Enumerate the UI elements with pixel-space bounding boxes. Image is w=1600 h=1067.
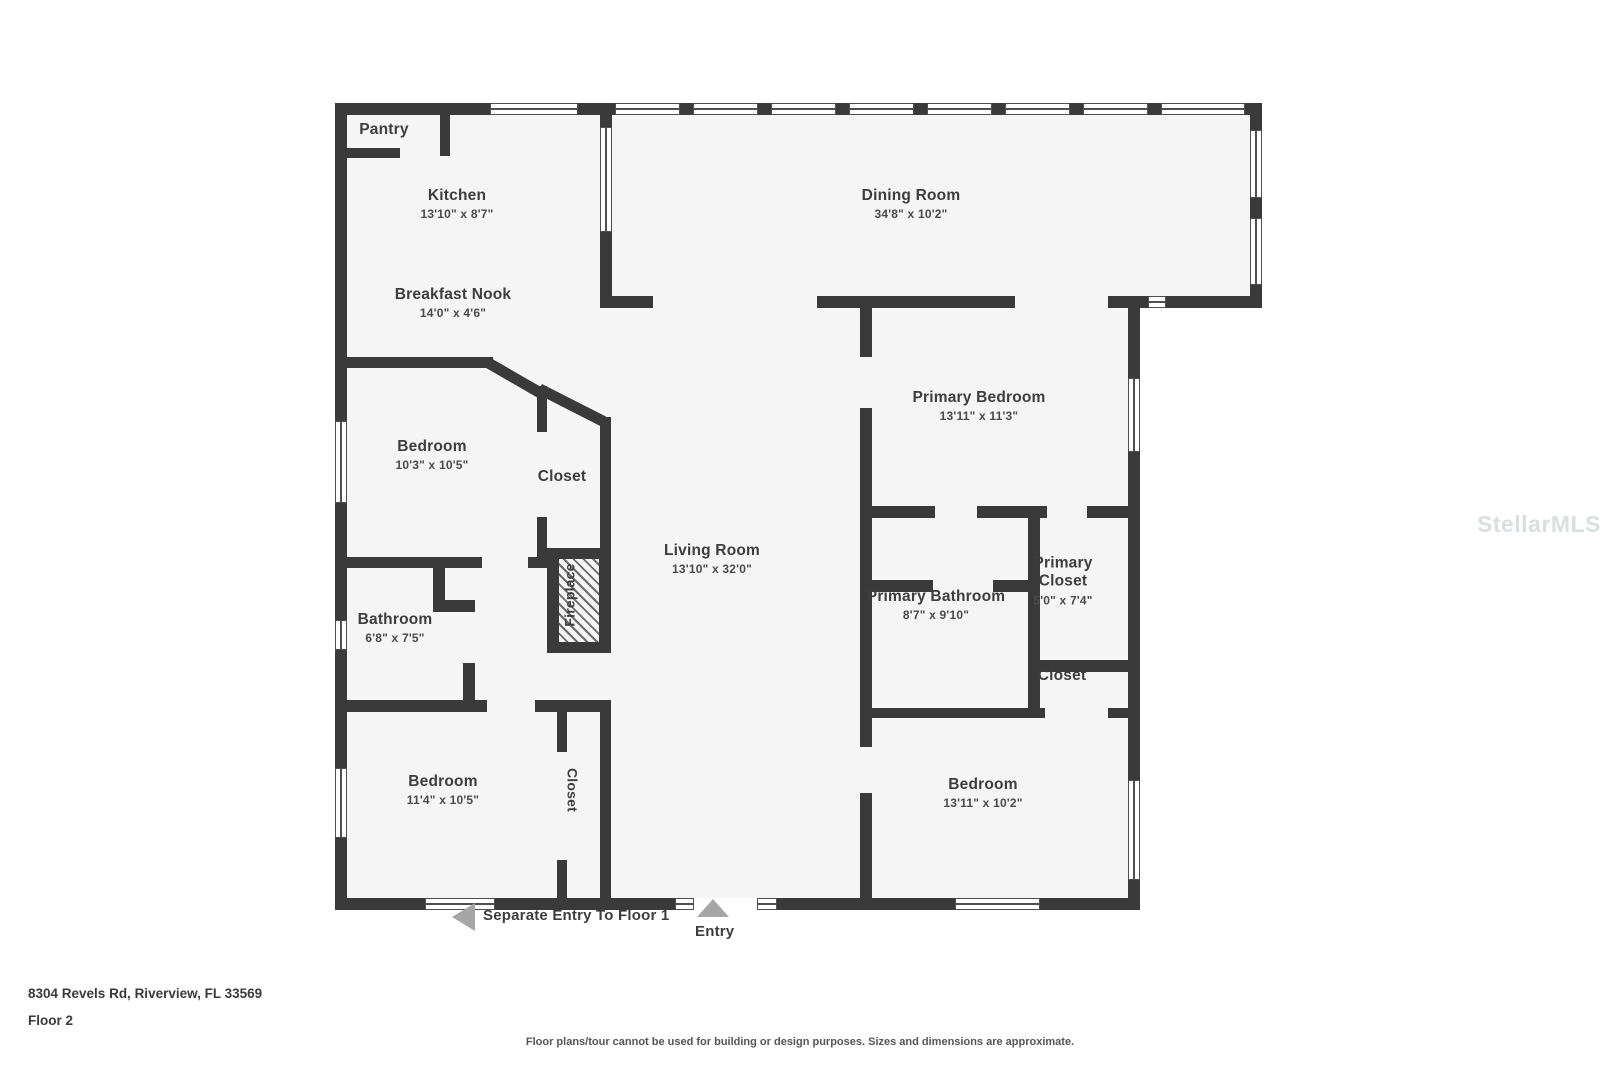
- window-symbol: [771, 103, 836, 115]
- room-label-breakfast-nook: Breakfast Nook 14'0" x 4'6": [395, 286, 512, 320]
- window-symbol: [693, 103, 758, 115]
- room-label-living-room: Living Room 13'10" x 32'0": [664, 542, 760, 576]
- window-symbol: [615, 103, 680, 115]
- wall-bathroom-jog: [433, 600, 475, 612]
- floorplan-canvas: Pantry Kitchen 13'10" x 8'7" Breakfast N…: [0, 0, 1600, 1067]
- room-dims: 14'0" x 4'6": [395, 306, 512, 320]
- room-dims: 8'7" x 9'10": [867, 608, 1005, 622]
- wall-primary-bedroom-bottom-c: [1087, 506, 1128, 518]
- room-name: Closet: [1038, 667, 1087, 685]
- room-name: Closet: [538, 468, 587, 486]
- wall-pantry-right: [440, 109, 450, 156]
- wall-hall-bottom-right: [535, 700, 611, 712]
- window-symbol: [1128, 780, 1140, 880]
- room-label-dining-room: Dining Room 34'8" x 10'2": [862, 187, 961, 221]
- room-label-kitchen: Kitchen 13'10" x 8'7": [420, 187, 493, 221]
- window-symbol: [955, 898, 1040, 910]
- room-name: Bedroom: [943, 776, 1022, 794]
- wall-closet-fireplace-right: [600, 417, 611, 653]
- door-jamb-symbol: [675, 898, 694, 910]
- window-symbol: [1083, 103, 1148, 115]
- window-symbol: [335, 421, 347, 503]
- room-label-bedroom-bottom-left: Bedroom 11'4" x 10'5": [407, 773, 479, 807]
- wall-pantry-bottom: [335, 148, 400, 158]
- window-symbol: [927, 103, 992, 115]
- room-label-bathroom: Bathroom 6'8" x 7'5": [358, 611, 433, 645]
- wall-bathroom-right-lower: [463, 663, 475, 703]
- room-dims: 10'3" x 10'5": [395, 458, 468, 472]
- separate-entry-label: Separate Entry To Floor 1: [483, 907, 669, 924]
- property-address: 8304 Revels Rd, Riverview, FL 33569: [28, 986, 262, 1001]
- window-symbol: [1250, 218, 1262, 285]
- wall-bathroom-top-stub: [528, 557, 548, 568]
- wall-small-closet-bottom-b: [1108, 708, 1128, 718]
- wall-living-divider-a: [860, 302, 872, 357]
- window-symbol: [335, 620, 347, 650]
- room-name: Living Room: [664, 542, 760, 560]
- entry-label: Entry: [695, 923, 734, 940]
- room-dims: 5'0" x 7'4": [1013, 593, 1113, 607]
- room-label-closet-bottom: Closet: [564, 768, 581, 812]
- room-name: Bedroom: [395, 438, 468, 456]
- window-symbol: [1005, 103, 1070, 115]
- wall-pbath-pcloset-divider: [1028, 506, 1040, 718]
- wall-primary-bedroom-bottom-a: [860, 506, 935, 518]
- room-label-closet-small: Closet: [1038, 667, 1087, 685]
- room-dims: 13'10" x 32'0": [664, 562, 760, 576]
- stellar-mls-watermark: StellarMLS: [1477, 511, 1600, 538]
- room-name: Fireplace: [562, 563, 579, 626]
- room-name: Kitchen: [420, 187, 493, 205]
- door-jamb-symbol: [757, 898, 777, 910]
- wall-bl-closet-left-upper: [557, 712, 567, 752]
- wall-bedroom-top: [341, 357, 493, 368]
- room-label-bedroom-bottom-right: Bedroom 13'11" x 10'2": [943, 776, 1022, 810]
- room-name: Primary Bedroom: [912, 389, 1045, 407]
- room-label-fireplace: Fireplace: [562, 563, 579, 626]
- window-symbol: [1148, 296, 1166, 308]
- room-name: Dining Room: [862, 187, 961, 205]
- disclaimer-text: Floor plans/tour cannot be used for buil…: [0, 1036, 1600, 1048]
- window-symbol: [1250, 130, 1262, 198]
- floor-number: Floor 2: [28, 1013, 73, 1028]
- wall-small-closet-bottom-a: [860, 708, 1045, 718]
- wall-bathroom-top: [341, 557, 482, 568]
- room-label-primary-bedroom: Primary Bedroom 13'11" x 11'3": [912, 389, 1045, 423]
- room-name: Bedroom: [407, 773, 479, 791]
- room-name: Primary Closet: [1013, 555, 1113, 592]
- room-name: Bathroom: [358, 611, 433, 629]
- wall-dining-bottom-b: [817, 296, 1015, 308]
- separate-entry-arrow-icon: [452, 903, 475, 931]
- wall-hall-right-lower: [600, 700, 611, 898]
- wall-closet-left-upper: [537, 386, 547, 432]
- room-name: Pantry: [359, 121, 408, 139]
- room-label-closet-mid: Closet: [538, 468, 587, 486]
- window-symbol: [335, 768, 347, 838]
- room-name: Primary Bathroom: [867, 588, 1005, 606]
- room-dims: 13'10" x 8'7": [420, 207, 493, 221]
- wall-fireplace-bottom: [547, 642, 611, 653]
- wall-bl-closet-left-lower: [557, 860, 567, 898]
- window-symbol: [490, 103, 578, 115]
- window-symbol: [849, 103, 914, 115]
- wall-fireplace-left: [547, 548, 558, 653]
- window-symbol: [1128, 378, 1140, 452]
- room-name: Closet: [564, 768, 581, 812]
- room-dims: 34'8" x 10'2": [862, 207, 961, 221]
- window-symbol: [600, 127, 612, 232]
- wall-living-divider-b: [860, 408, 872, 747]
- room-label-primary-bathroom: Primary Bathroom 8'7" x 9'10": [867, 588, 1005, 622]
- room-dims: 6'8" x 7'5": [358, 631, 433, 645]
- room-dims: 13'11" x 10'2": [943, 796, 1022, 810]
- room-dims: 13'11" x 11'3": [912, 409, 1045, 423]
- room-dims: 11'4" x 10'5": [407, 793, 479, 807]
- wall-living-divider-c: [860, 793, 872, 898]
- room-label-pantry: Pantry: [359, 121, 408, 139]
- room-name: Breakfast Nook: [395, 286, 512, 304]
- room-label-primary-closet: Primary Closet 5'0" x 7'4": [1013, 555, 1113, 608]
- entry-arrow-icon: [697, 899, 729, 917]
- window-symbol: [1161, 103, 1245, 115]
- room-label-bedroom-left: Bedroom 10'3" x 10'5": [395, 438, 468, 472]
